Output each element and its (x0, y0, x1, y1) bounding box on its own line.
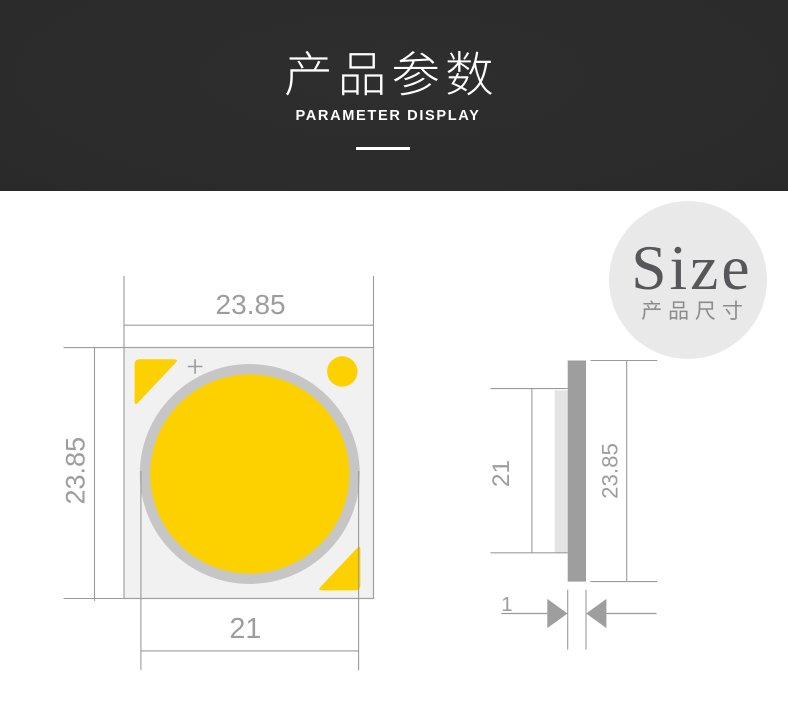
svg-text:23.85: 23.85 (598, 443, 623, 499)
svg-text:1: 1 (501, 593, 512, 616)
svg-text:23.85: 23.85 (216, 289, 286, 320)
svg-text:21: 21 (488, 460, 515, 487)
svg-text:23.85: 23.85 (60, 437, 90, 505)
svg-text:21: 21 (229, 613, 261, 645)
